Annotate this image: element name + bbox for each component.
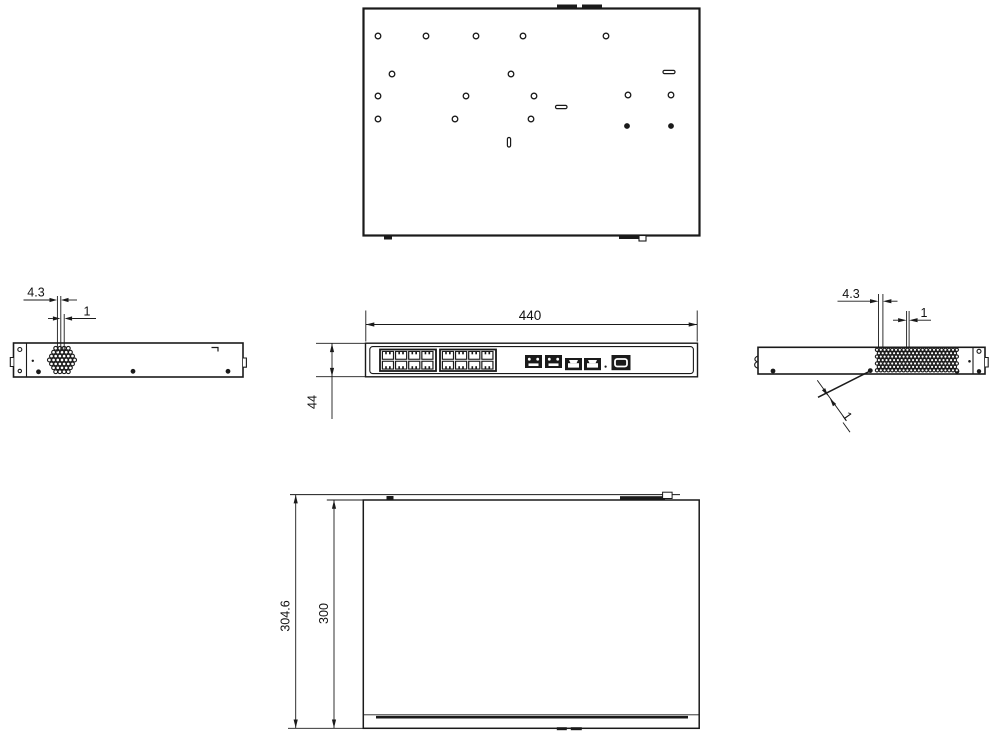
vent-hole (919, 365, 922, 368)
vent-hole (904, 352, 907, 355)
vent-hole (889, 352, 892, 355)
vent-hole (898, 348, 901, 351)
dim-front-height: 44 (306, 343, 366, 419)
vent-hole (894, 369, 897, 372)
vent-hole (887, 348, 890, 351)
arrowhead (870, 299, 879, 303)
screw-dot (977, 369, 981, 373)
dim-label-body-depth: 300 (317, 603, 331, 624)
panel-hole (528, 116, 534, 122)
vent-hole (902, 369, 905, 372)
vent-hole (951, 362, 954, 365)
vent-hole (940, 362, 943, 365)
sfp-pin (528, 358, 531, 361)
dim-label-overall-depth: 304.6 (279, 600, 293, 631)
vent-hole (921, 362, 924, 365)
dim-left-hole: 1 (48, 305, 96, 321)
rj45-port (395, 361, 407, 370)
vent-hole (64, 350, 68, 354)
vent-hole (915, 365, 918, 368)
vent-hole (908, 358, 911, 361)
vent-hole (50, 354, 54, 358)
vent-hole (58, 370, 62, 374)
vent-hole (910, 355, 913, 358)
front-tab (557, 727, 567, 730)
vent-hole (896, 352, 899, 355)
front-latch (639, 236, 646, 242)
jack-pin (447, 366, 449, 369)
jack-tab (569, 360, 578, 363)
vent-hole (64, 358, 68, 362)
arrowhead (294, 495, 298, 504)
vent-hole (885, 365, 888, 368)
vent-hole (898, 369, 901, 372)
flange-hole (977, 349, 981, 353)
vent-hole (915, 358, 918, 361)
vent-hole (917, 369, 920, 372)
vent-hole (921, 355, 924, 358)
arrowhead (50, 298, 58, 302)
jack-pin (477, 352, 479, 355)
rj45-port (408, 351, 420, 360)
jack-opening (383, 362, 393, 366)
vent-hole (902, 355, 905, 358)
jack-opening (409, 354, 419, 358)
jack-opening (443, 362, 453, 366)
vent-hole (64, 366, 68, 370)
jack-pin (477, 366, 479, 369)
jack-pin (383, 366, 385, 369)
jack-pin (473, 352, 475, 355)
vent-hole (913, 355, 916, 358)
jack-pin (422, 352, 424, 355)
dim-label-wall-thickness: 1 (840, 409, 855, 423)
vent-hole (71, 354, 75, 358)
jack-pin (482, 366, 484, 369)
arrowhead (330, 344, 334, 353)
rj45-port (395, 351, 407, 360)
panel-hole (625, 92, 631, 98)
side-lug (10, 358, 13, 367)
vent-hole (891, 369, 894, 372)
jack-opening (469, 354, 479, 358)
front-tab (571, 727, 582, 730)
bottom-view-outline (363, 500, 699, 728)
vent-hole (885, 352, 888, 355)
vent-hole (940, 348, 943, 351)
vent-hole (898, 362, 901, 365)
rear-tab (557, 5, 577, 10)
vent-hole (62, 362, 66, 366)
jack-pin (387, 352, 389, 355)
vent-hole (929, 362, 932, 365)
jack-pin (396, 352, 398, 355)
panel-hole (375, 33, 381, 39)
vent-hole (917, 355, 920, 358)
vent-hole (902, 362, 905, 365)
vent-hole (883, 369, 886, 372)
panel-hole (389, 71, 395, 77)
vent-hole (948, 362, 951, 365)
vent-hole (930, 352, 933, 355)
vent-hole (944, 355, 947, 358)
vent-hole (889, 358, 892, 361)
vent-hole (52, 366, 56, 370)
vent-hole (887, 369, 890, 372)
jack-pin (460, 366, 462, 369)
vent-hole (896, 365, 899, 368)
vent-hole (913, 362, 916, 365)
vent-hole (917, 348, 920, 351)
rj45-port-block-1 (380, 350, 436, 372)
vent-hole (60, 358, 64, 362)
uplink-rj45-1 (565, 358, 582, 370)
jack-pin (409, 352, 411, 355)
screw-dot (771, 369, 776, 374)
arrowhead (61, 298, 69, 302)
vent-hole (58, 362, 62, 366)
vent-hole (879, 355, 882, 358)
screw-dot (131, 369, 136, 374)
vent-hole (948, 355, 951, 358)
jack-pin (413, 366, 415, 369)
left-side-view (10, 343, 246, 377)
vent-hole (946, 352, 949, 355)
arrowhead (332, 720, 336, 729)
vent-hole (940, 369, 943, 372)
vent-hole (955, 348, 958, 351)
vent-hole (927, 358, 930, 361)
dim-body-depth: 300 (317, 500, 336, 728)
vent-hole (946, 365, 949, 368)
jack-pin (422, 366, 424, 369)
vent-hole (891, 355, 894, 358)
vent-hole (906, 362, 909, 365)
vent-hole (69, 350, 73, 354)
arrowhead (883, 299, 892, 303)
vent-hole (929, 355, 932, 358)
vent-hole (904, 358, 907, 361)
vent-hole (910, 369, 913, 372)
jack-pin (426, 352, 428, 355)
vent-hole (936, 362, 939, 365)
vent-hole (927, 365, 930, 368)
vent-hole (936, 355, 939, 358)
rj45-port (408, 361, 420, 370)
rear-latch (663, 492, 673, 498)
jack-opening (568, 363, 579, 367)
jack-opening (482, 354, 492, 358)
jack-pin (426, 366, 428, 369)
vent-hole (949, 358, 952, 361)
vent-hole (942, 358, 945, 361)
vent-hole (879, 362, 882, 365)
vent-hole (71, 362, 75, 366)
vent-hole (66, 354, 70, 358)
vent-hole (887, 362, 890, 365)
rj45-port (468, 351, 480, 360)
vent-hole (50, 362, 54, 366)
dim-label-front-width: 440 (519, 308, 542, 323)
jack-pin (400, 352, 402, 355)
jack-pin (486, 352, 488, 355)
vent-hole (946, 358, 949, 361)
console-port (612, 355, 631, 370)
jack-pin (417, 366, 419, 369)
sfp-pin (536, 358, 539, 361)
dim-front-width: 440 (366, 308, 697, 342)
vent-hole (58, 354, 62, 358)
panel-hole (531, 93, 537, 99)
arrowhead (294, 720, 298, 729)
jack-opening (456, 354, 466, 358)
vent-hole (883, 362, 886, 365)
vent-hole (921, 348, 924, 351)
arrowhead (909, 318, 918, 322)
arrowhead (330, 368, 334, 377)
jack-pin (413, 352, 415, 355)
jack-pin (482, 352, 484, 355)
sfp-pin (548, 358, 551, 361)
panel-hole (423, 33, 429, 39)
jack-pin (490, 352, 492, 355)
slot-hole (663, 70, 675, 73)
slot-hole (507, 138, 510, 148)
rj45-port (468, 361, 480, 370)
vent-hole (919, 352, 922, 355)
vent-hole (892, 358, 895, 361)
sfp-port-2 (545, 355, 562, 368)
vent-hole (62, 354, 66, 358)
rj45-port (481, 351, 493, 360)
rear-tab (582, 5, 602, 10)
rj45-port (382, 351, 394, 360)
jack-pin (451, 352, 453, 355)
jack-opening (422, 362, 432, 366)
jack-pin (473, 366, 475, 369)
vent-hole (942, 365, 945, 368)
jack-pin (404, 366, 406, 369)
vent-hole (934, 365, 937, 368)
vent-hole (940, 355, 943, 358)
vent-hole (908, 352, 911, 355)
jack-pin (400, 366, 402, 369)
rj45-port (481, 361, 493, 370)
vent-hole (69, 366, 73, 370)
dimension-drawing-canvas: 4.3 1 (0, 0, 1000, 755)
screw-dot (668, 123, 674, 129)
jack-pin (417, 352, 419, 355)
vent-hole (927, 352, 930, 355)
panel-hole (463, 93, 469, 99)
vent-hole (955, 362, 958, 365)
jack-pin (469, 366, 471, 369)
vent-hole (951, 355, 954, 358)
vent-hole (936, 348, 939, 351)
dim-left-pitch: 4.3 (24, 286, 78, 303)
panel-hole (452, 116, 458, 122)
rivet-dot (968, 360, 971, 363)
vent-hole (944, 362, 947, 365)
vent-hole (949, 365, 952, 368)
panel-hole (668, 92, 674, 98)
dim-label-left-hole: 1 (84, 305, 91, 319)
jack-pin (464, 366, 466, 369)
right-side-view (755, 347, 989, 374)
vent-hole (875, 355, 878, 358)
side-lug (985, 358, 988, 368)
rj45-port (455, 351, 467, 360)
vent-hole-panel (875, 348, 958, 372)
vent-hole (938, 365, 941, 368)
vent-hole (881, 352, 884, 355)
vent-hole (54, 370, 58, 374)
jack-opening (587, 363, 598, 367)
front-tab (384, 236, 392, 240)
vent-hole (894, 348, 897, 351)
jack-pin (404, 352, 406, 355)
vent-hole (66, 370, 70, 374)
vent-hole (896, 358, 899, 361)
vent-hole (875, 348, 878, 351)
vent-hole (892, 352, 895, 355)
vent-hole (934, 352, 937, 355)
arrowhead (689, 322, 698, 326)
vent-hole (908, 365, 911, 368)
jack-pin (486, 366, 488, 369)
vent-hole (913, 369, 916, 372)
jack-opening (409, 362, 419, 366)
vent-hole (906, 369, 909, 372)
dim-right-pitch: 4.3 (838, 287, 898, 303)
bottom-dimensions: 304.6 300 (279, 495, 364, 729)
jack-opening (396, 362, 406, 366)
dim-label-left-pitch: 4.3 (27, 286, 44, 300)
arrowhead (53, 316, 61, 320)
vent-hole (925, 355, 928, 358)
vent-hole (951, 348, 954, 351)
rj45-port (382, 361, 394, 370)
jack-opening (456, 362, 466, 366)
vent-hole (917, 362, 920, 365)
vent-hole (932, 369, 935, 372)
vent-hole (929, 369, 932, 372)
vent-hole (879, 369, 882, 372)
vent-hole (894, 355, 897, 358)
jack-pin (391, 352, 393, 355)
vent-hole (942, 352, 945, 355)
sfp-slot (549, 363, 559, 366)
vent-hole (923, 352, 926, 355)
vent-hole (923, 365, 926, 368)
vent-hole (906, 355, 909, 358)
flange-hole (18, 348, 22, 352)
vent-hole (877, 365, 880, 368)
slot-hole (556, 105, 568, 108)
jack-opening (396, 354, 406, 358)
rivet-dot (32, 360, 34, 362)
side-lug (243, 358, 246, 367)
sfp-pin (556, 358, 559, 361)
vent-hole (938, 358, 941, 361)
vent-hole (900, 358, 903, 361)
vent-hole (948, 348, 951, 351)
vent-hole (915, 352, 918, 355)
vent-hole (936, 369, 939, 372)
vent-hole (54, 354, 58, 358)
vent-hole (911, 358, 914, 361)
vent-hole (930, 358, 933, 361)
vent-hole (883, 348, 886, 351)
panel-hole (375, 93, 381, 99)
vent-hole (938, 352, 941, 355)
front-tab (619, 236, 640, 240)
vent-hole (932, 348, 935, 351)
jack-pin (391, 366, 393, 369)
vent-hole (892, 365, 895, 368)
vent-hole (932, 362, 935, 365)
rj45-port (442, 361, 454, 370)
vent-hole (56, 358, 60, 362)
rj45-port-block-2 (440, 350, 496, 372)
vent-hole (52, 358, 56, 362)
dim-label-right-pitch: 4.3 (842, 287, 859, 301)
vent-hole (69, 358, 73, 362)
rj45-port (455, 361, 467, 370)
vent-hole (900, 352, 903, 355)
panel-hole (520, 33, 526, 39)
vent-hole (921, 369, 924, 372)
vent-hole (951, 369, 954, 372)
vent-hole (900, 365, 903, 368)
vent-hole (910, 362, 913, 365)
dim-label-front-height: 44 (306, 395, 320, 409)
jack-opening (482, 362, 492, 366)
vent-hole (48, 358, 52, 362)
vent-hole (66, 346, 70, 350)
vent-hole (56, 366, 60, 370)
arrowhead (332, 500, 336, 509)
vent-hole (54, 362, 58, 366)
vent-hole (887, 355, 890, 358)
vent-hole (929, 348, 932, 351)
vent-hole (875, 362, 878, 365)
sfp-slot (529, 363, 539, 366)
label-underline (843, 423, 850, 433)
jack-pin (456, 352, 458, 355)
dim-overall-depth: 304.6 (279, 495, 298, 729)
vent-hole (948, 369, 951, 372)
vent-hole (894, 362, 897, 365)
jack-pin (430, 352, 432, 355)
uplink-rj45-2 (584, 358, 601, 370)
vent-hole (877, 358, 880, 361)
front-bezel-bar (376, 716, 688, 719)
vent-hole (944, 348, 947, 351)
jack-pin (490, 366, 492, 369)
dim-right-hole: 1 (893, 306, 931, 322)
panel-hole (375, 116, 381, 122)
jack-pin (396, 366, 398, 369)
vent-hole (885, 358, 888, 361)
vent-hole (944, 369, 947, 372)
vent-hole (883, 355, 886, 358)
vent-hole (953, 365, 956, 368)
vent-hole (904, 365, 907, 368)
dim-wall-thickness: 1 (817, 371, 870, 432)
vent-hole (898, 355, 901, 358)
rj45-port (421, 361, 433, 370)
